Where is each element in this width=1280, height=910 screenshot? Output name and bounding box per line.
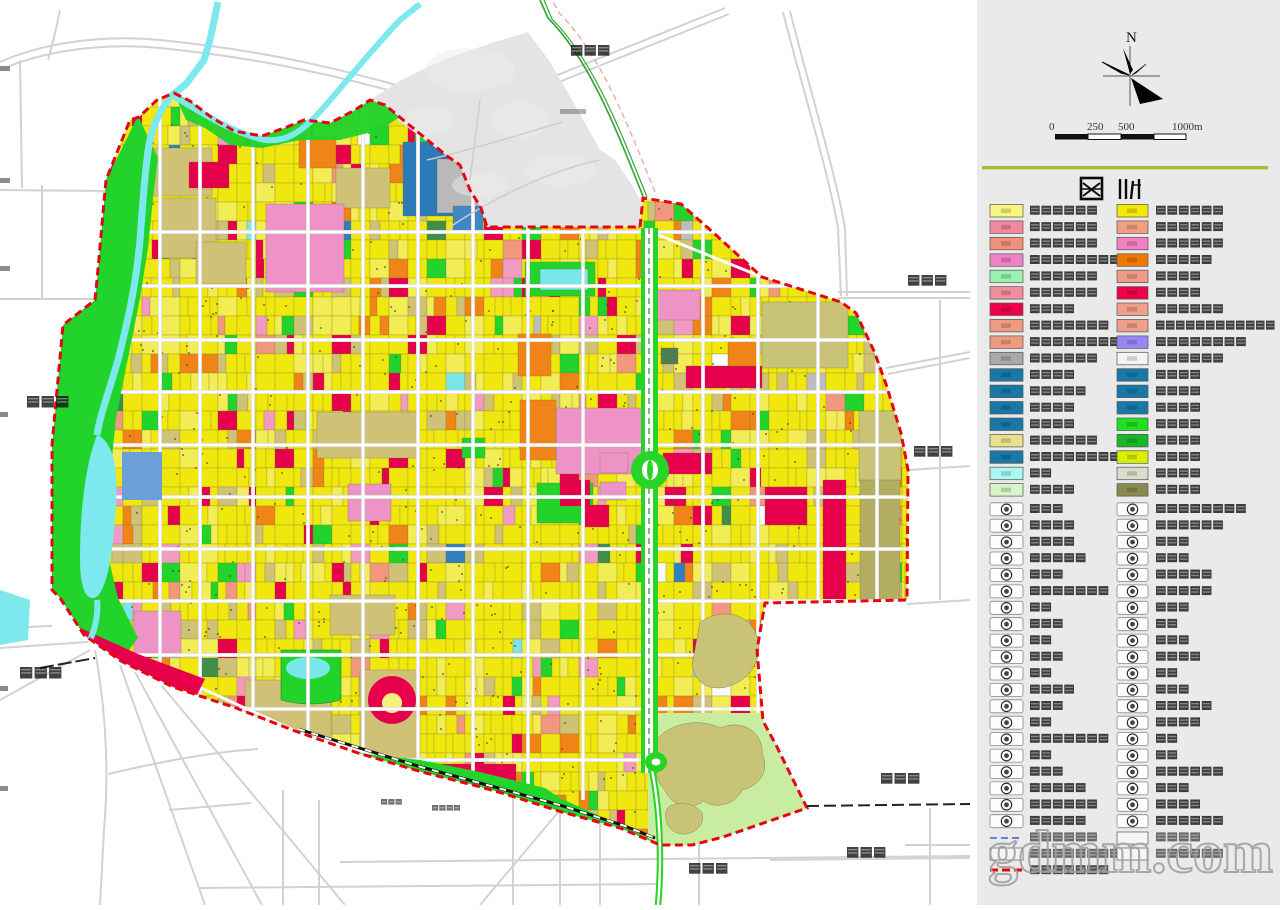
svg-text:1000m: 1000m	[1172, 121, 1203, 133]
svg-text:500: 500	[1118, 121, 1135, 133]
svg-text:N: N	[1126, 30, 1137, 46]
svg-text:0: 0	[1049, 121, 1055, 133]
svg-text:250: 250	[1087, 121, 1104, 133]
